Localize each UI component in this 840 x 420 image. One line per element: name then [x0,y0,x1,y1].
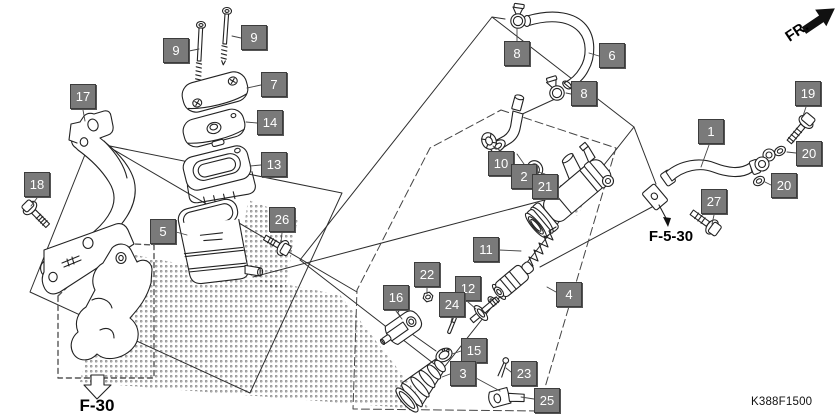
f530-arrow [659,205,671,227]
master-cylinder-body [511,141,616,240]
callout-4[interactable]: 4 [556,282,582,307]
diagram-part-code: K388F1500 [751,396,811,408]
callout-23[interactable]: 23 [511,361,537,386]
sealing-washer-lower [752,174,766,187]
callout-8[interactable]: 8 [571,81,597,106]
callout-27[interactable]: 27 [701,189,727,214]
hose-clamp-a [511,3,525,28]
callout-13[interactable]: 13 [261,152,287,177]
callout-14[interactable]: 14 [257,110,283,135]
bracket-bolt-18 [19,197,53,231]
callout-17[interactable]: 17 [70,84,96,109]
reservoir-hose [524,12,594,90]
ref-label-f5-30: F-5-30 [641,228,701,245]
adjust-nut [422,292,435,306]
callout-6[interactable]: 6 [599,43,625,68]
callout-19[interactable]: 19 [795,81,821,106]
callout-3[interactable]: 3 [450,361,476,386]
callout-22[interactable]: 22 [414,262,440,287]
reservoir-cap [179,69,251,115]
callout-9[interactable]: 9 [163,38,189,63]
ref-label-f30: F-30 [72,396,122,416]
callout-8[interactable]: 8 [504,41,530,66]
callout-26[interactable]: 26 [269,207,295,232]
cotter-pin [497,357,509,378]
callout-16[interactable]: 16 [383,285,409,310]
callout-18[interactable]: 18 [24,172,50,197]
rod-yoke [372,303,425,351]
callout-15[interactable]: 15 [461,338,487,363]
callout-5[interactable]: 5 [150,219,176,244]
hose-clamp-b [543,74,567,103]
callout-20[interactable]: 20 [771,173,797,198]
parts-diagram-page: 9 9 7 14 13 17 18 5 26 8 6 8 10 2 21 1 1… [0,0,840,420]
callout-25[interactable]: 25 [534,388,560,413]
callout-20[interactable]: 20 [796,141,822,166]
diaphragm [180,144,257,210]
callout-21[interactable]: 21 [532,174,558,199]
callout-24[interactable]: 24 [439,292,465,317]
reservoir-screw-a [193,21,205,86]
reservoir-screw-b [219,7,232,65]
callout-1[interactable]: 1 [698,119,724,144]
callout-7[interactable]: 7 [261,72,287,97]
callout-11[interactable]: 11 [473,237,499,262]
callout-9[interactable]: 9 [241,25,267,50]
